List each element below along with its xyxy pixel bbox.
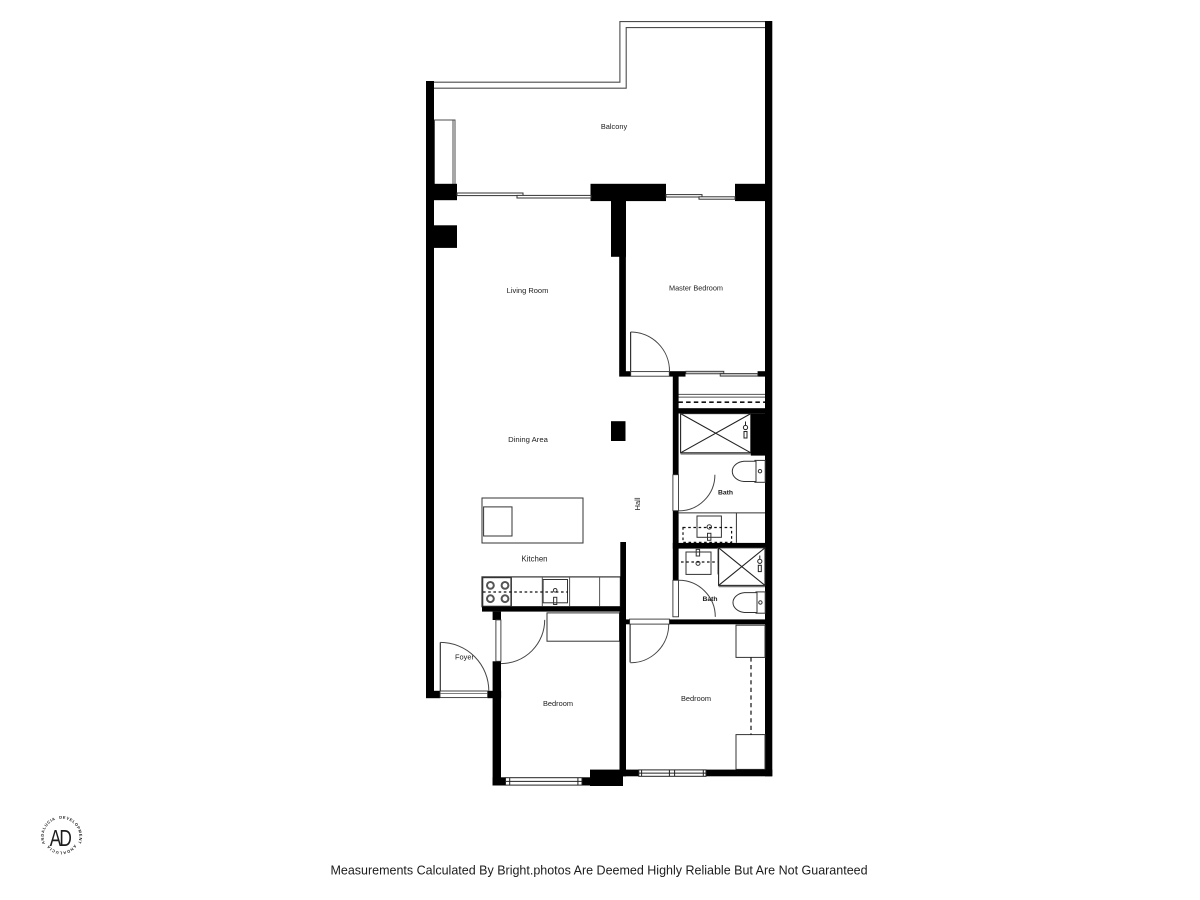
svg-text:Master Bedroom: Master Bedroom [669,283,723,292]
svg-text:Kitchen: Kitchen [521,555,547,564]
svg-text:Bath: Bath [718,489,733,496]
svg-text:Bedroom: Bedroom [543,699,573,708]
svg-text:Measurements Calculated By Bri: Measurements Calculated By Bright.photos… [330,864,867,878]
svg-text:Bedroom: Bedroom [681,694,711,703]
svg-text:Dining Area: Dining Area [508,435,548,444]
svg-text:Hall: Hall [633,497,642,510]
svg-text:Balcony: Balcony [601,122,628,131]
svg-text:Living Room: Living Room [507,286,549,295]
